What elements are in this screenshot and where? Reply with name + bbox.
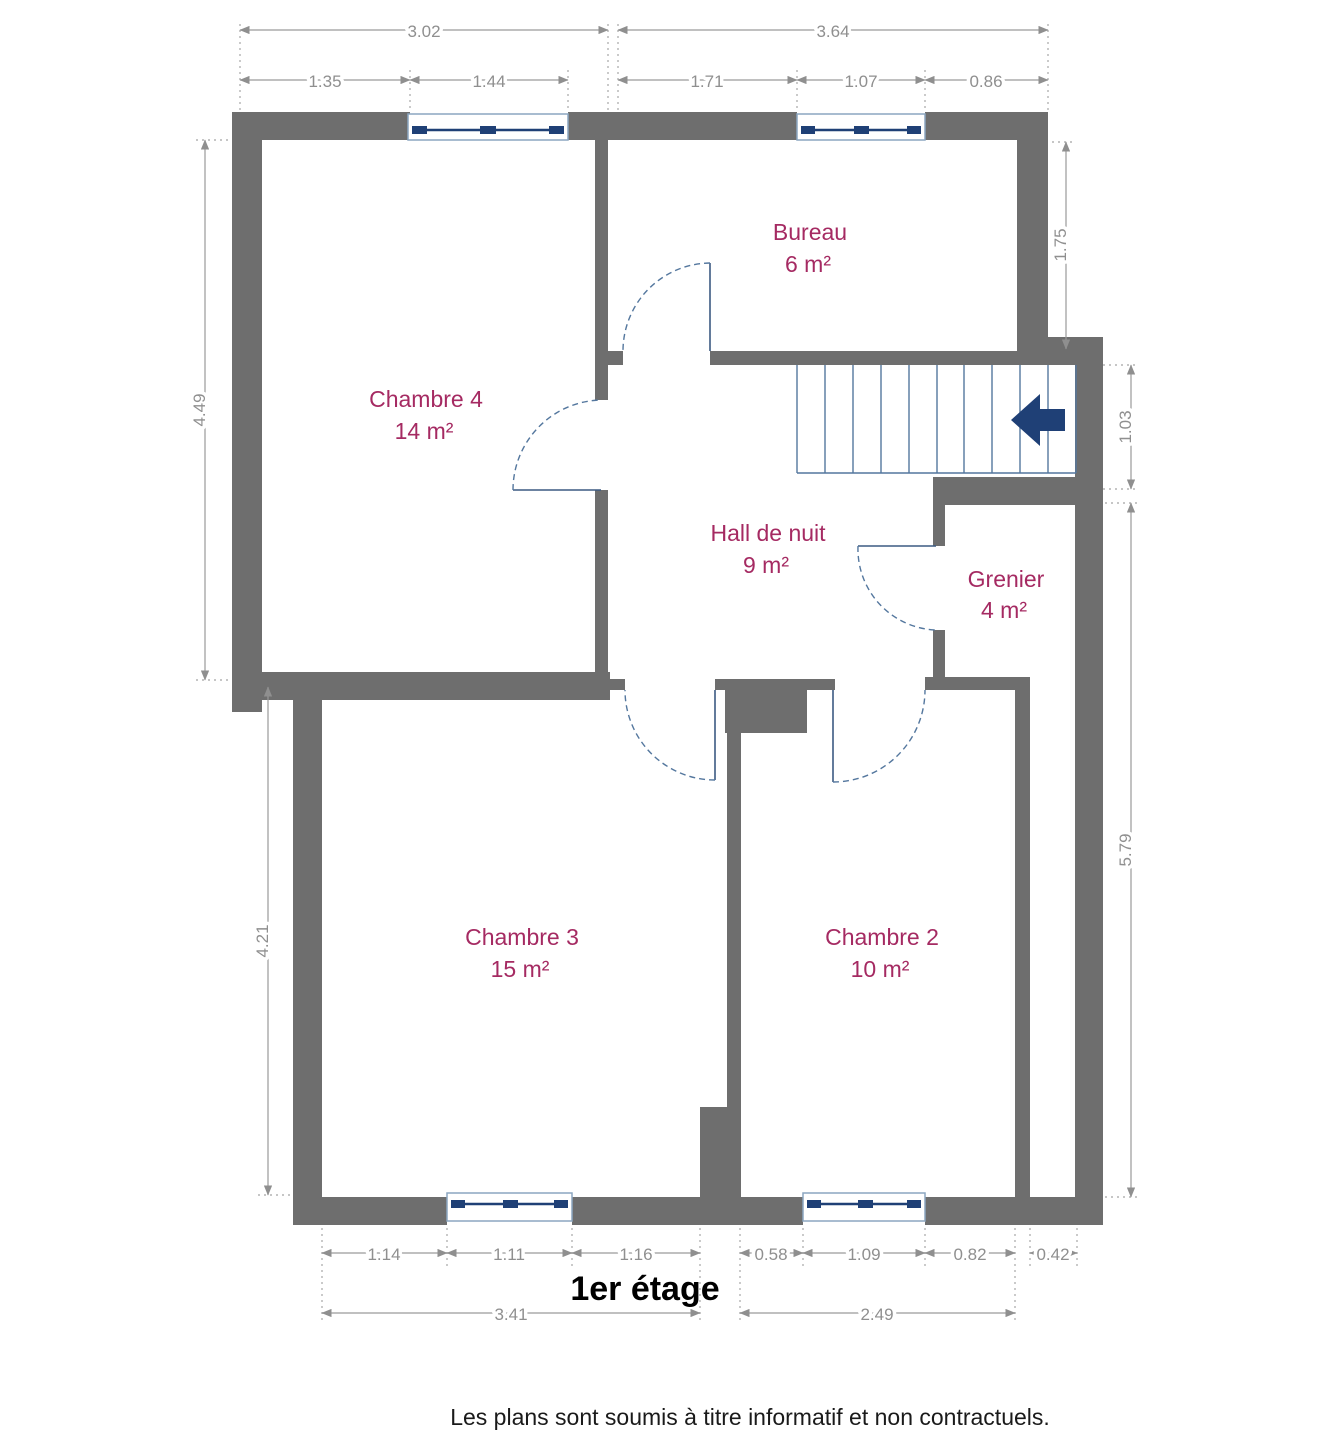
dim-bottom-detail-2: 1.11 — [493, 1245, 525, 1264]
room-label-grenier-name: Grenier — [968, 566, 1045, 592]
dim-bottom-detail-6: 0.82 — [953, 1245, 986, 1264]
dim-top-detail-4: 1.07 — [844, 72, 877, 91]
window-chambre4 — [408, 114, 568, 140]
wall-segment — [933, 505, 945, 546]
door-grenier — [858, 546, 936, 630]
door-chambre3 — [625, 690, 715, 780]
dim-right-1: 1.75 — [1051, 228, 1070, 261]
room-label-chambre3-area: 15 m² — [491, 956, 550, 982]
wall-segment — [232, 672, 610, 700]
dim-left-1: 4.49 — [190, 393, 209, 426]
dim-bottom-overall-1: 3.41 — [494, 1305, 527, 1324]
dim-bottom-detail-1: 1.14 — [367, 1245, 400, 1264]
wall-segment — [727, 733, 741, 1107]
dim-bottom-overall-2: 2.49 — [860, 1305, 893, 1324]
window-bureau — [797, 114, 925, 140]
room-label-chambre4-name: Chambre 4 — [369, 386, 483, 412]
wall-segment — [608, 679, 625, 690]
room-label-chambre2-name: Chambre 2 — [825, 924, 939, 950]
room-label-bureau-area: 6 m² — [785, 251, 831, 277]
dim-top-detail-5: 0.86 — [969, 72, 1002, 91]
door-bureau — [623, 263, 710, 351]
window-chambre3 — [447, 1193, 572, 1221]
wall-segment — [933, 630, 945, 677]
floor-plan-canvas: Bureau 6 m² Chambre 4 14 m² Hall de nuit… — [0, 0, 1335, 1440]
dim-bottom-detail-3: 1.16 — [619, 1245, 652, 1264]
dim-bottom-detail-5: 1.09 — [847, 1245, 880, 1264]
wall-segment — [595, 490, 608, 700]
room-labels: Bureau 6 m² Chambre 4 14 m² Hall de nuit… — [369, 219, 1045, 982]
door-chambre2 — [833, 690, 925, 782]
dim-right-2: 1.03 — [1116, 410, 1135, 443]
disclaimer-text: Les plans sont soumis à titre informatif… — [450, 1404, 1050, 1430]
room-label-chambre4-area: 14 m² — [395, 418, 454, 444]
dim-right-3: 5.79 — [1116, 833, 1135, 866]
wall-segment — [725, 690, 807, 733]
wall-segment — [925, 677, 1030, 690]
floor-title: 1er étage — [570, 1270, 719, 1308]
room-label-hall-name: Hall de nuit — [710, 520, 826, 546]
wall-segment — [715, 679, 835, 690]
wall-segment — [608, 351, 623, 365]
room-label-grenier-area: 4 m² — [981, 597, 1027, 623]
staircase — [797, 365, 1076, 473]
dim-top-detail-2: 1.44 — [472, 72, 505, 91]
wall-segment — [925, 112, 1048, 140]
dim-top-overall-2: 3.64 — [816, 22, 849, 41]
dim-top-detail-3: 1.71 — [690, 72, 723, 91]
arrow-left-icon — [1011, 394, 1065, 446]
wall-segment — [700, 1107, 741, 1197]
room-label-chambre2-area: 10 m² — [851, 956, 910, 982]
room-label-chambre3-name: Chambre 3 — [465, 924, 579, 950]
wall-segment — [1017, 140, 1048, 351]
dim-top-detail-1: 1.35 — [308, 72, 341, 91]
floor-plan-page: Bureau 6 m² Chambre 4 14 m² Hall de nuit… — [0, 0, 1335, 1440]
window-chambre2 — [803, 1193, 925, 1221]
wall-segment — [1015, 690, 1030, 1197]
wall-segment — [232, 112, 262, 712]
dim-bottom-detail-4: 0.58 — [754, 1245, 787, 1264]
wall-segment — [572, 1197, 803, 1225]
wall-segment — [595, 140, 608, 400]
dim-top-overall-1: 3.02 — [407, 22, 440, 41]
room-label-bureau-name: Bureau — [773, 219, 847, 245]
wall-segment — [1075, 337, 1103, 1225]
wall-layer — [232, 112, 1103, 1225]
dim-left-2: 4.21 — [253, 924, 272, 957]
room-label-hall-area: 9 m² — [743, 552, 789, 578]
dim-bottom-detail-7: 0.42 — [1036, 1245, 1069, 1264]
wall-segment — [293, 672, 322, 1225]
wall-segment — [568, 112, 797, 140]
door-chambre4 — [513, 400, 601, 490]
